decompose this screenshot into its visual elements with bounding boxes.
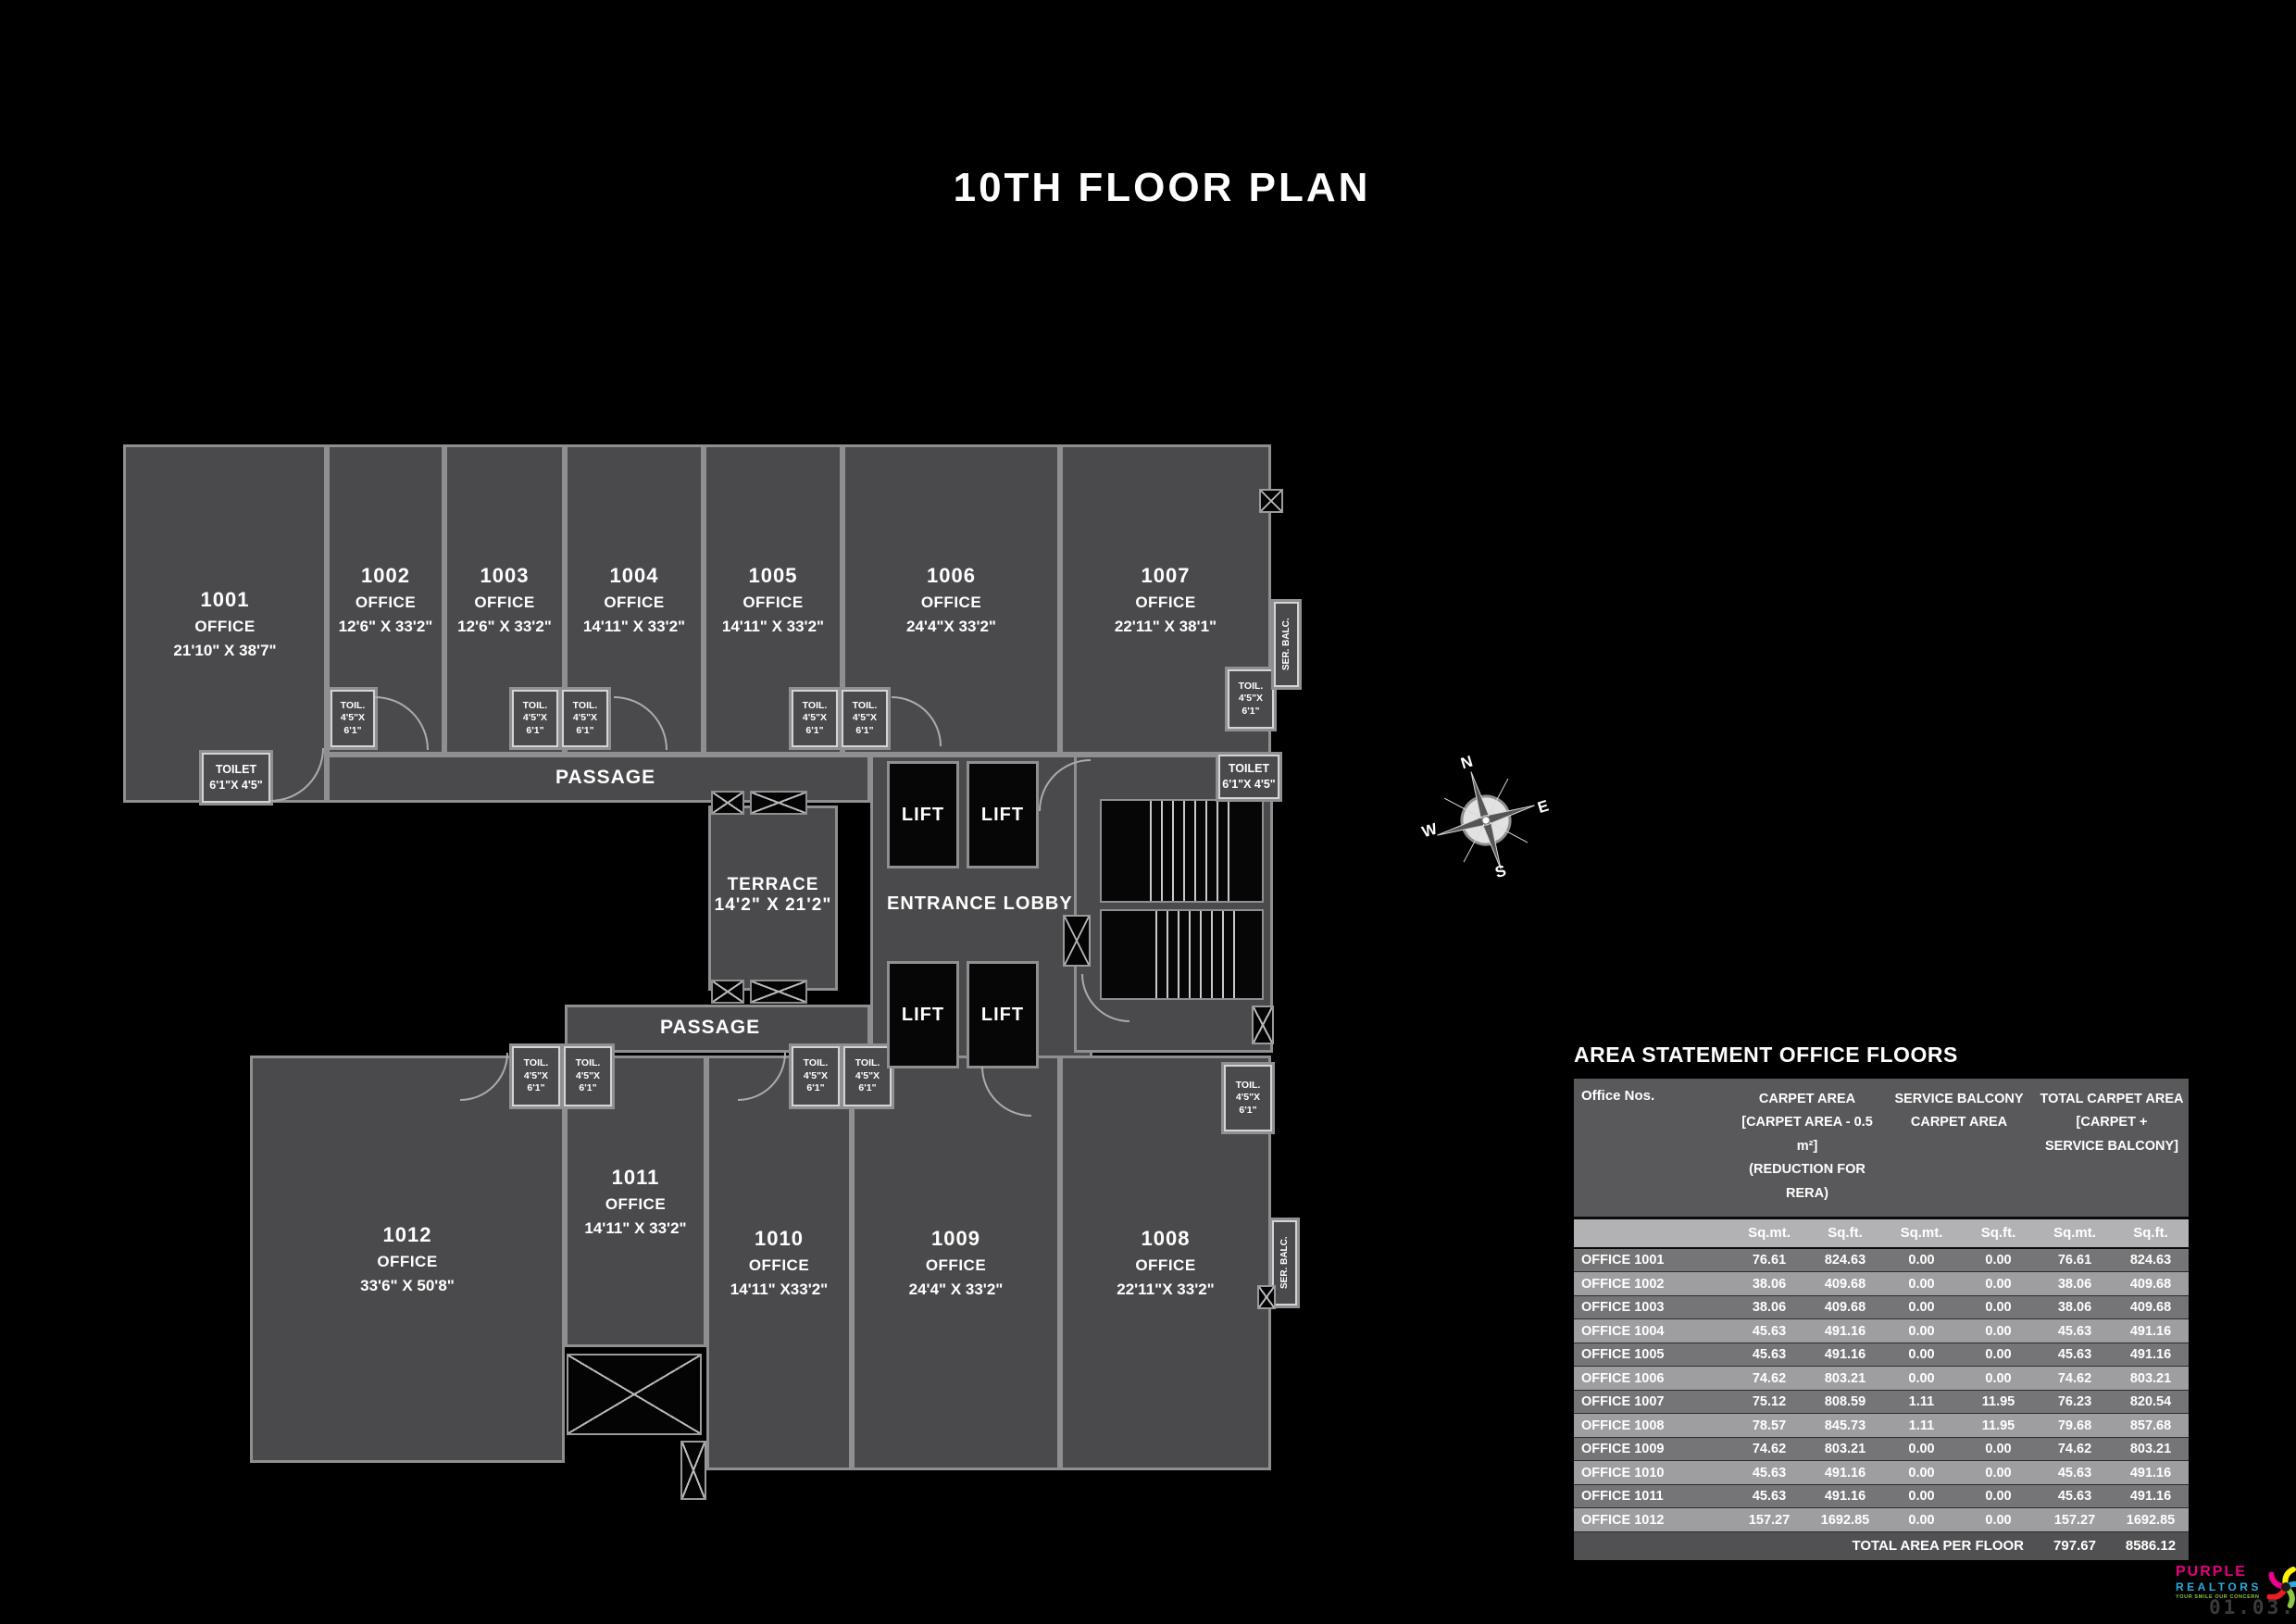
total-sqft-cell: 491.16 xyxy=(2113,1466,2189,1480)
carpet-sqmt-cell: 78.57 xyxy=(1731,1418,1807,1433)
carpet-sqft-cell: 845.73 xyxy=(1807,1418,1883,1433)
table-row: OFFICE 1005 45.63 491.16 0.00 0.00 45.63… xyxy=(1574,1343,2189,1368)
toilet-box-label: 6'1" xyxy=(1239,1105,1256,1118)
office-id: 1009 xyxy=(931,1229,980,1249)
service-sqft-cell: 0.00 xyxy=(1960,1300,2037,1315)
unit-sqft: Sq.ft. xyxy=(2113,1225,2189,1241)
office-dims: 14'11" X33'2" xyxy=(730,1281,829,1297)
brand-text: PURPLE REALTORS YOUR SMILE OUR CONCERN xyxy=(2176,1565,2262,1601)
carpet-sqmt-cell: 74.62 xyxy=(1731,1442,1807,1456)
total-sqmt: 797.67 xyxy=(2037,1538,2113,1554)
office-room-1012: 1012OFFICE33'6" X 50'8" xyxy=(250,1056,565,1463)
office-dims: 22'11" X 38'1" xyxy=(1115,618,1217,634)
carpet-sqft-cell: 803.21 xyxy=(1807,1442,1883,1456)
terrace-planter xyxy=(711,791,744,815)
toilet-box-label: 4'5"X xyxy=(1239,693,1263,706)
toilet-room-label: 6'1"X 4'5" xyxy=(1222,777,1275,793)
carpet-sqmt-cell: 76.61 xyxy=(1731,1253,1807,1268)
col-header-carpet-area: CARPET AREA [CARPET AREA - 0.5 m²] (REDU… xyxy=(1731,1088,1883,1206)
duct-void xyxy=(1252,1006,1274,1044)
office-id: 1003 xyxy=(480,566,530,586)
service-balcony: SER. BALC. xyxy=(1272,1220,1297,1305)
office-id: 1008 xyxy=(1142,1229,1191,1249)
date-stamp: 01.03.2022 xyxy=(2209,1596,2296,1618)
carpet-sqmt-cell: 74.62 xyxy=(1731,1371,1807,1386)
service-sqft-cell: 0.00 xyxy=(1960,1466,2037,1480)
office-type: OFFICE xyxy=(749,1257,809,1273)
office-dims: 22'11"X 33'2" xyxy=(1117,1281,1215,1297)
office-cell: OFFICE 1009 xyxy=(1574,1442,1731,1456)
toilet-room: TOILET6'1"X 4'5" xyxy=(1218,755,1279,799)
total-sqft-cell: 820.54 xyxy=(2113,1394,2189,1409)
total-sqmt-cell: 157.27 xyxy=(2037,1513,2113,1528)
toilet-box-label: 6'1" xyxy=(805,725,823,738)
col-header-office-nos: Office Nos. xyxy=(1574,1088,1731,1206)
carpet-sqmt-cell: 38.06 xyxy=(1731,1277,1807,1292)
carpet-sqmt-cell: 45.63 xyxy=(1731,1324,1807,1339)
total-sqft-cell: 824.63 xyxy=(2113,1253,2189,1268)
total-sqmt-cell: 45.63 xyxy=(2037,1347,2113,1362)
toilet-box: TOIL.4'5"X6'1" xyxy=(512,690,558,747)
carpet-sqft-cell: 409.68 xyxy=(1807,1277,1883,1292)
office-dims: 12'6" X 33'2" xyxy=(339,618,433,634)
toilet-box-label: TOIL. xyxy=(853,700,878,713)
office-dims: 24'4" X 33'2" xyxy=(909,1281,1004,1297)
lift-shaft: LIFT xyxy=(887,761,959,868)
office-id: 1001 xyxy=(201,590,250,610)
office-cell: OFFICE 1003 xyxy=(1574,1300,1731,1315)
toilet-box-label: 4'5"X xyxy=(524,1070,548,1083)
toilet-box-label: TOIL. xyxy=(523,700,548,713)
toilet-box-label: 4'5"X xyxy=(1236,1092,1260,1105)
col-header-service-balcony: SERVICE BALCONY CARPET AREA xyxy=(1883,1088,2035,1206)
office-dims: 14'11" X 33'2" xyxy=(722,618,824,634)
table-row: OFFICE 1001 76.61 824.63 0.00 0.00 76.61… xyxy=(1574,1249,2189,1273)
toilet-box: TOIL.4'5"X6'1" xyxy=(1224,1065,1272,1131)
table-title: AREA STATEMENT OFFICE FLOORS xyxy=(1574,1043,2189,1068)
office-id: 1004 xyxy=(610,566,659,586)
unit-sqft: Sq.ft. xyxy=(1807,1225,1883,1241)
office-dims: 14'11" X 33'2" xyxy=(584,1220,686,1236)
floor-plan-page: 10TH FLOOR PLAN PASSAGE PASSAGE ENTRANCE… xyxy=(0,0,2296,1624)
total-sqft-cell: 491.16 xyxy=(2113,1489,2189,1504)
compass-north-label: N xyxy=(1459,753,1475,773)
service-sqft-cell: 0.00 xyxy=(1960,1347,2037,1362)
service-sqmt-cell: 0.00 xyxy=(1883,1442,1960,1456)
table-body: OFFICE 1001 76.61 824.63 0.00 0.00 76.61… xyxy=(1574,1249,2189,1532)
toilet-box: TOIL.4'5"X6'1" xyxy=(843,1046,892,1106)
office-type: OFFICE xyxy=(605,1196,666,1212)
office-cell: OFFICE 1006 xyxy=(1574,1371,1731,1386)
service-sqmt-cell: 0.00 xyxy=(1883,1277,1960,1292)
lift-label: LIFT xyxy=(981,1005,1024,1026)
unit-sqmt: Sq.mt. xyxy=(1883,1225,1960,1241)
lift-shaft: LIFT xyxy=(967,961,1039,1068)
brand-name-line1: PURPLE xyxy=(2176,1565,2262,1580)
terrace-planter xyxy=(711,980,744,1004)
total-sqft-cell: 1692.85 xyxy=(2113,1513,2189,1528)
office-type: OFFICE xyxy=(356,594,416,610)
toilet-box-label: TOIL. xyxy=(803,700,828,713)
terrace-label: TERRACE 14'2" X 21'2" xyxy=(713,875,833,916)
stairwell-upper xyxy=(1100,799,1264,903)
carpet-sqmt-cell: 38.06 xyxy=(1731,1300,1807,1315)
terrace-dims: 14'2" X 21'2" xyxy=(715,895,832,915)
page-title: 10TH FLOOR PLAN xyxy=(944,165,1379,211)
toilet-box-label: 6'1" xyxy=(527,1082,544,1095)
service-sqft-cell: 0.00 xyxy=(1960,1489,2037,1504)
toilet-box-label: 6'1" xyxy=(858,1082,876,1095)
carpet-sqmt-cell: 45.63 xyxy=(1731,1466,1807,1480)
carpet-sqft-cell: 1692.85 xyxy=(1807,1513,1883,1528)
office-type: OFFICE xyxy=(921,594,981,610)
total-sqmt-cell: 45.63 xyxy=(2037,1466,2113,1480)
stair-treads xyxy=(1155,911,1241,998)
table-row: OFFICE 1004 45.63 491.16 0.00 0.00 45.63… xyxy=(1574,1319,2189,1343)
lift-shaft: LIFT xyxy=(967,761,1039,868)
toilet-box-label: 4'5"X xyxy=(855,1070,880,1083)
service-sqft-cell: 11.95 xyxy=(1960,1394,2037,1409)
lift-label: LIFT xyxy=(902,1005,944,1026)
office-id: 1011 xyxy=(612,1168,660,1188)
unit-sqmt: Sq.mt. xyxy=(1731,1225,1807,1241)
service-sqmt-cell: 0.00 xyxy=(1883,1347,1960,1362)
area-statement-table: AREA STATEMENT OFFICE FLOORS Office Nos.… xyxy=(1574,1043,2189,1560)
terrace-name: TERRACE xyxy=(728,875,819,894)
office-type: OFFICE xyxy=(474,594,534,610)
compass-rose: N E W S xyxy=(1407,736,1569,898)
office-id: 1005 xyxy=(749,566,798,586)
table-subheader: Sq.mt. Sq.ft. Sq.mt. Sq.ft. Sq.mt. Sq.ft… xyxy=(1574,1217,2189,1249)
office-type: OFFICE xyxy=(742,594,803,610)
toilet-box-label: 4'5"X xyxy=(803,712,827,725)
service-sqft-cell: 0.00 xyxy=(1960,1513,2037,1528)
office-type: OFFICE xyxy=(1135,594,1195,610)
toilet-room: TOILET6'1"X 4'5" xyxy=(202,753,270,803)
office-cell: OFFICE 1004 xyxy=(1574,1324,1731,1339)
total-sqmt-cell: 76.23 xyxy=(2037,1394,2113,1409)
table-header: Office Nos. CARPET AREA [CARPET AREA - 0… xyxy=(1574,1079,2189,1217)
office-cell: OFFICE 1007 xyxy=(1574,1394,1731,1409)
toilet-room-label: 6'1"X 4'5" xyxy=(209,778,262,793)
toilet-box: TOIL.4'5"X6'1" xyxy=(562,690,608,747)
toilet-box-label: 6'1" xyxy=(855,725,873,738)
toilet-box: TOIL.4'5"X6'1" xyxy=(792,1046,840,1106)
total-sqmt-cell: 38.06 xyxy=(2037,1277,2113,1292)
toilet-box-label: 6'1" xyxy=(579,1082,596,1095)
lift-label: LIFT xyxy=(981,805,1024,826)
terrace-planter xyxy=(750,791,807,815)
duct-void xyxy=(567,1354,702,1435)
total-sqft-cell: 409.68 xyxy=(2113,1277,2189,1292)
office-room-1010: 1010OFFICE14'11" X33'2" xyxy=(706,1056,852,1470)
service-sqmt-cell: 0.00 xyxy=(1883,1513,1960,1528)
carpet-sqft-cell: 491.16 xyxy=(1807,1489,1883,1504)
carpet-sqmt-cell: 75.12 xyxy=(1731,1394,1807,1409)
total-sqft-cell: 857.68 xyxy=(2113,1418,2189,1433)
table-row: OFFICE 1007 75.12 808.59 1.11 11.95 76.2… xyxy=(1574,1391,2189,1415)
carpet-sqft-cell: 803.21 xyxy=(1807,1371,1883,1386)
passage-bottom-label: PASSAGE xyxy=(660,1017,760,1039)
toilet-box-label: 4'5"X xyxy=(523,712,547,725)
office-id: 1012 xyxy=(383,1225,432,1245)
toilet-room-label: TOILET xyxy=(216,762,256,778)
table-row: OFFICE 1008 78.57 845.73 1.11 11.95 79.6… xyxy=(1574,1414,2189,1438)
office-type: OFFICE xyxy=(377,1254,437,1269)
toilet-box-label: 6'1" xyxy=(343,725,361,738)
service-sqmt-cell: 1.11 xyxy=(1883,1418,1960,1433)
toilet-box-label: 6'1" xyxy=(576,725,593,738)
office-id: 1007 xyxy=(1142,566,1191,586)
total-sqft-cell: 409.68 xyxy=(2113,1300,2189,1315)
carpet-sqmt-cell: 45.63 xyxy=(1731,1347,1807,1362)
total-sqmt-cell: 38.06 xyxy=(2037,1300,2113,1315)
toilet-box: TOIL.4'5"X6'1" xyxy=(842,690,888,747)
total-sqft-cell: 803.21 xyxy=(2113,1442,2189,1456)
table-row: OFFICE 1011 45.63 491.16 0.00 0.00 45.63… xyxy=(1574,1485,2189,1509)
office-id: 1002 xyxy=(361,566,410,586)
carpet-sqft-cell: 409.68 xyxy=(1807,1300,1883,1315)
table-row: OFFICE 1009 74.62 803.21 0.00 0.00 74.62… xyxy=(1574,1438,2189,1462)
duct-void xyxy=(1063,915,1091,967)
total-sqmt-cell: 76.61 xyxy=(2037,1253,2113,1268)
office-dims: 21'10" X 38'7" xyxy=(173,643,276,658)
total-sqft-cell: 803.21 xyxy=(2113,1371,2189,1386)
office-type: OFFICE xyxy=(194,618,255,634)
table-row: OFFICE 1010 45.63 491.16 0.00 0.00 45.63… xyxy=(1574,1461,2189,1485)
toilet-box: TOIL.4'5"X6'1" xyxy=(564,1046,612,1106)
total-sqft: 8586.12 xyxy=(2113,1538,2189,1554)
office-room-1009: 1009OFFICE24'4" X 33'2" xyxy=(852,1056,1060,1470)
col-header-total-carpet-area: TOTAL CARPET AREA [CARPET + SERVICE BALC… xyxy=(2035,1088,2189,1206)
service-sqmt-cell: 0.00 xyxy=(1883,1466,1960,1480)
toilet-room-label: TOILET xyxy=(1229,761,1269,777)
duct-void xyxy=(1259,489,1283,513)
toilet-box-label: TOIL. xyxy=(1239,681,1264,693)
compass-south-label: S xyxy=(1493,862,1508,881)
compass-east-label: E xyxy=(1536,797,1551,817)
lift-shaft: LIFT xyxy=(887,961,959,1068)
office-cell: OFFICE 1011 xyxy=(1574,1489,1731,1504)
service-sqft-cell: 0.00 xyxy=(1960,1442,2037,1456)
service-sqmt-cell: 0.00 xyxy=(1883,1371,1960,1386)
brand-name-line2: REALTORS xyxy=(2176,1581,2262,1593)
toilet-box: TOIL.4'5"X6'1" xyxy=(512,1046,560,1106)
carpet-sqft-cell: 491.16 xyxy=(1807,1347,1883,1362)
office-cell: OFFICE 1001 xyxy=(1574,1253,1731,1268)
service-sqft-cell: 11.95 xyxy=(1960,1418,2037,1433)
toilet-box-label: 4'5"X xyxy=(576,1070,600,1083)
toilet-box-label: TOIL. xyxy=(1236,1080,1261,1093)
table-row: OFFICE 1006 74.62 803.21 0.00 0.00 74.62… xyxy=(1574,1367,2189,1391)
toilet-box-label: TOIL. xyxy=(804,1057,829,1070)
total-sqmt-cell: 45.63 xyxy=(2037,1489,2113,1504)
toilet-box-label: TOIL. xyxy=(855,1057,880,1070)
office-id: 1010 xyxy=(755,1229,804,1249)
passage-top-label: PASSAGE xyxy=(555,767,655,789)
duct-void xyxy=(1257,1285,1276,1309)
toilet-box-label: TOIL. xyxy=(573,700,598,713)
office-cell: OFFICE 1002 xyxy=(1574,1277,1731,1292)
unit-sqft: Sq.ft. xyxy=(1960,1225,2037,1241)
toilet-box-label: 4'5"X xyxy=(853,712,877,725)
service-sqft-cell: 0.00 xyxy=(1960,1371,2037,1386)
service-sqmt-cell: 0.00 xyxy=(1883,1300,1960,1315)
carpet-sqft-cell: 491.16 xyxy=(1807,1466,1883,1480)
service-sqft-cell: 0.00 xyxy=(1960,1324,2037,1339)
table-row: OFFICE 1002 38.06 409.68 0.00 0.00 38.06… xyxy=(1574,1272,2189,1296)
toilet-box-label: 6'1" xyxy=(526,725,543,738)
stair-treads xyxy=(1150,801,1235,901)
toilet-box-label: TOIL. xyxy=(341,700,366,713)
duct-void xyxy=(680,1441,706,1500)
service-sqft-cell: 0.00 xyxy=(1960,1277,2037,1292)
total-sqmt-cell: 74.62 xyxy=(2037,1442,2113,1456)
office-dims: 33'6" X 50'8" xyxy=(360,1278,455,1293)
office-type: OFFICE xyxy=(926,1257,986,1273)
office-cell: OFFICE 1008 xyxy=(1574,1418,1731,1433)
unit-sqmt: Sq.mt. xyxy=(2037,1225,2113,1241)
office-cell: OFFICE 1010 xyxy=(1574,1466,1731,1480)
total-label: TOTAL AREA PER FLOOR xyxy=(1574,1538,2037,1554)
office-dims: 14'11" X 33'2" xyxy=(583,618,685,634)
total-sqft-cell: 491.16 xyxy=(2113,1324,2189,1339)
service-sqmt-cell: 1.11 xyxy=(1883,1394,1960,1409)
carpet-sqft-cell: 824.63 xyxy=(1807,1253,1883,1268)
toilet-box-label: 4'5"X xyxy=(804,1070,828,1083)
service-sqft-cell: 0.00 xyxy=(1960,1253,2037,1268)
service-sqmt-cell: 0.00 xyxy=(1883,1489,1960,1504)
entrance-lobby-label: ENTRANCE LOBBY xyxy=(887,893,1073,915)
total-sqmt-cell: 74.62 xyxy=(2037,1371,2113,1386)
toilet-box-label: 4'5"X xyxy=(341,712,365,725)
office-dims: 24'4"X 33'2" xyxy=(906,618,996,634)
total-sqft-cell: 491.16 xyxy=(2113,1347,2189,1362)
carpet-sqmt-cell: 45.63 xyxy=(1731,1489,1807,1504)
service-sqmt-cell: 0.00 xyxy=(1883,1253,1960,1268)
toilet-box-label: 6'1" xyxy=(1242,706,1259,718)
service-balcony: SER. BALC. xyxy=(1274,602,1299,687)
toilet-box-label: TOIL. xyxy=(576,1057,601,1070)
table-total-row: TOTAL AREA PER FLOOR 797.67 8586.12 xyxy=(1574,1532,2189,1560)
toilet-box: TOIL.4'5"X6'1" xyxy=(331,690,375,747)
toilet-box-label: 4'5"X xyxy=(573,712,597,725)
office-type: OFFICE xyxy=(604,594,664,610)
lift-label: LIFT xyxy=(902,805,944,826)
service-sqmt-cell: 0.00 xyxy=(1883,1324,1960,1339)
total-sqmt-cell: 45.63 xyxy=(2037,1324,2113,1339)
office-cell: OFFICE 1012 xyxy=(1574,1513,1731,1528)
toilet-box: TOIL.4'5"X6'1" xyxy=(792,690,838,747)
office-dims: 12'6" X 33'2" xyxy=(457,618,552,634)
toilet-box-label: TOIL. xyxy=(524,1057,549,1070)
toilet-box: TOIL.4'5"X6'1" xyxy=(1228,669,1274,729)
carpet-sqft-cell: 808.59 xyxy=(1807,1394,1883,1409)
office-id: 1006 xyxy=(927,566,976,586)
compass-west-label: W xyxy=(1420,819,1441,841)
total-sqmt-cell: 79.68 xyxy=(2037,1418,2113,1433)
table-row: OFFICE 1003 38.06 409.68 0.00 0.00 38.06… xyxy=(1574,1296,2189,1320)
table-row: OFFICE 1012 157.27 1692.85 0.00 0.00 157… xyxy=(1574,1508,2189,1532)
carpet-sqmt-cell: 157.27 xyxy=(1731,1513,1807,1528)
carpet-sqft-cell: 491.16 xyxy=(1807,1324,1883,1339)
toilet-box-label: 6'1" xyxy=(806,1082,824,1095)
office-type: OFFICE xyxy=(1135,1257,1195,1273)
terrace-planter xyxy=(750,980,807,1004)
office-cell: OFFICE 1005 xyxy=(1574,1347,1731,1362)
